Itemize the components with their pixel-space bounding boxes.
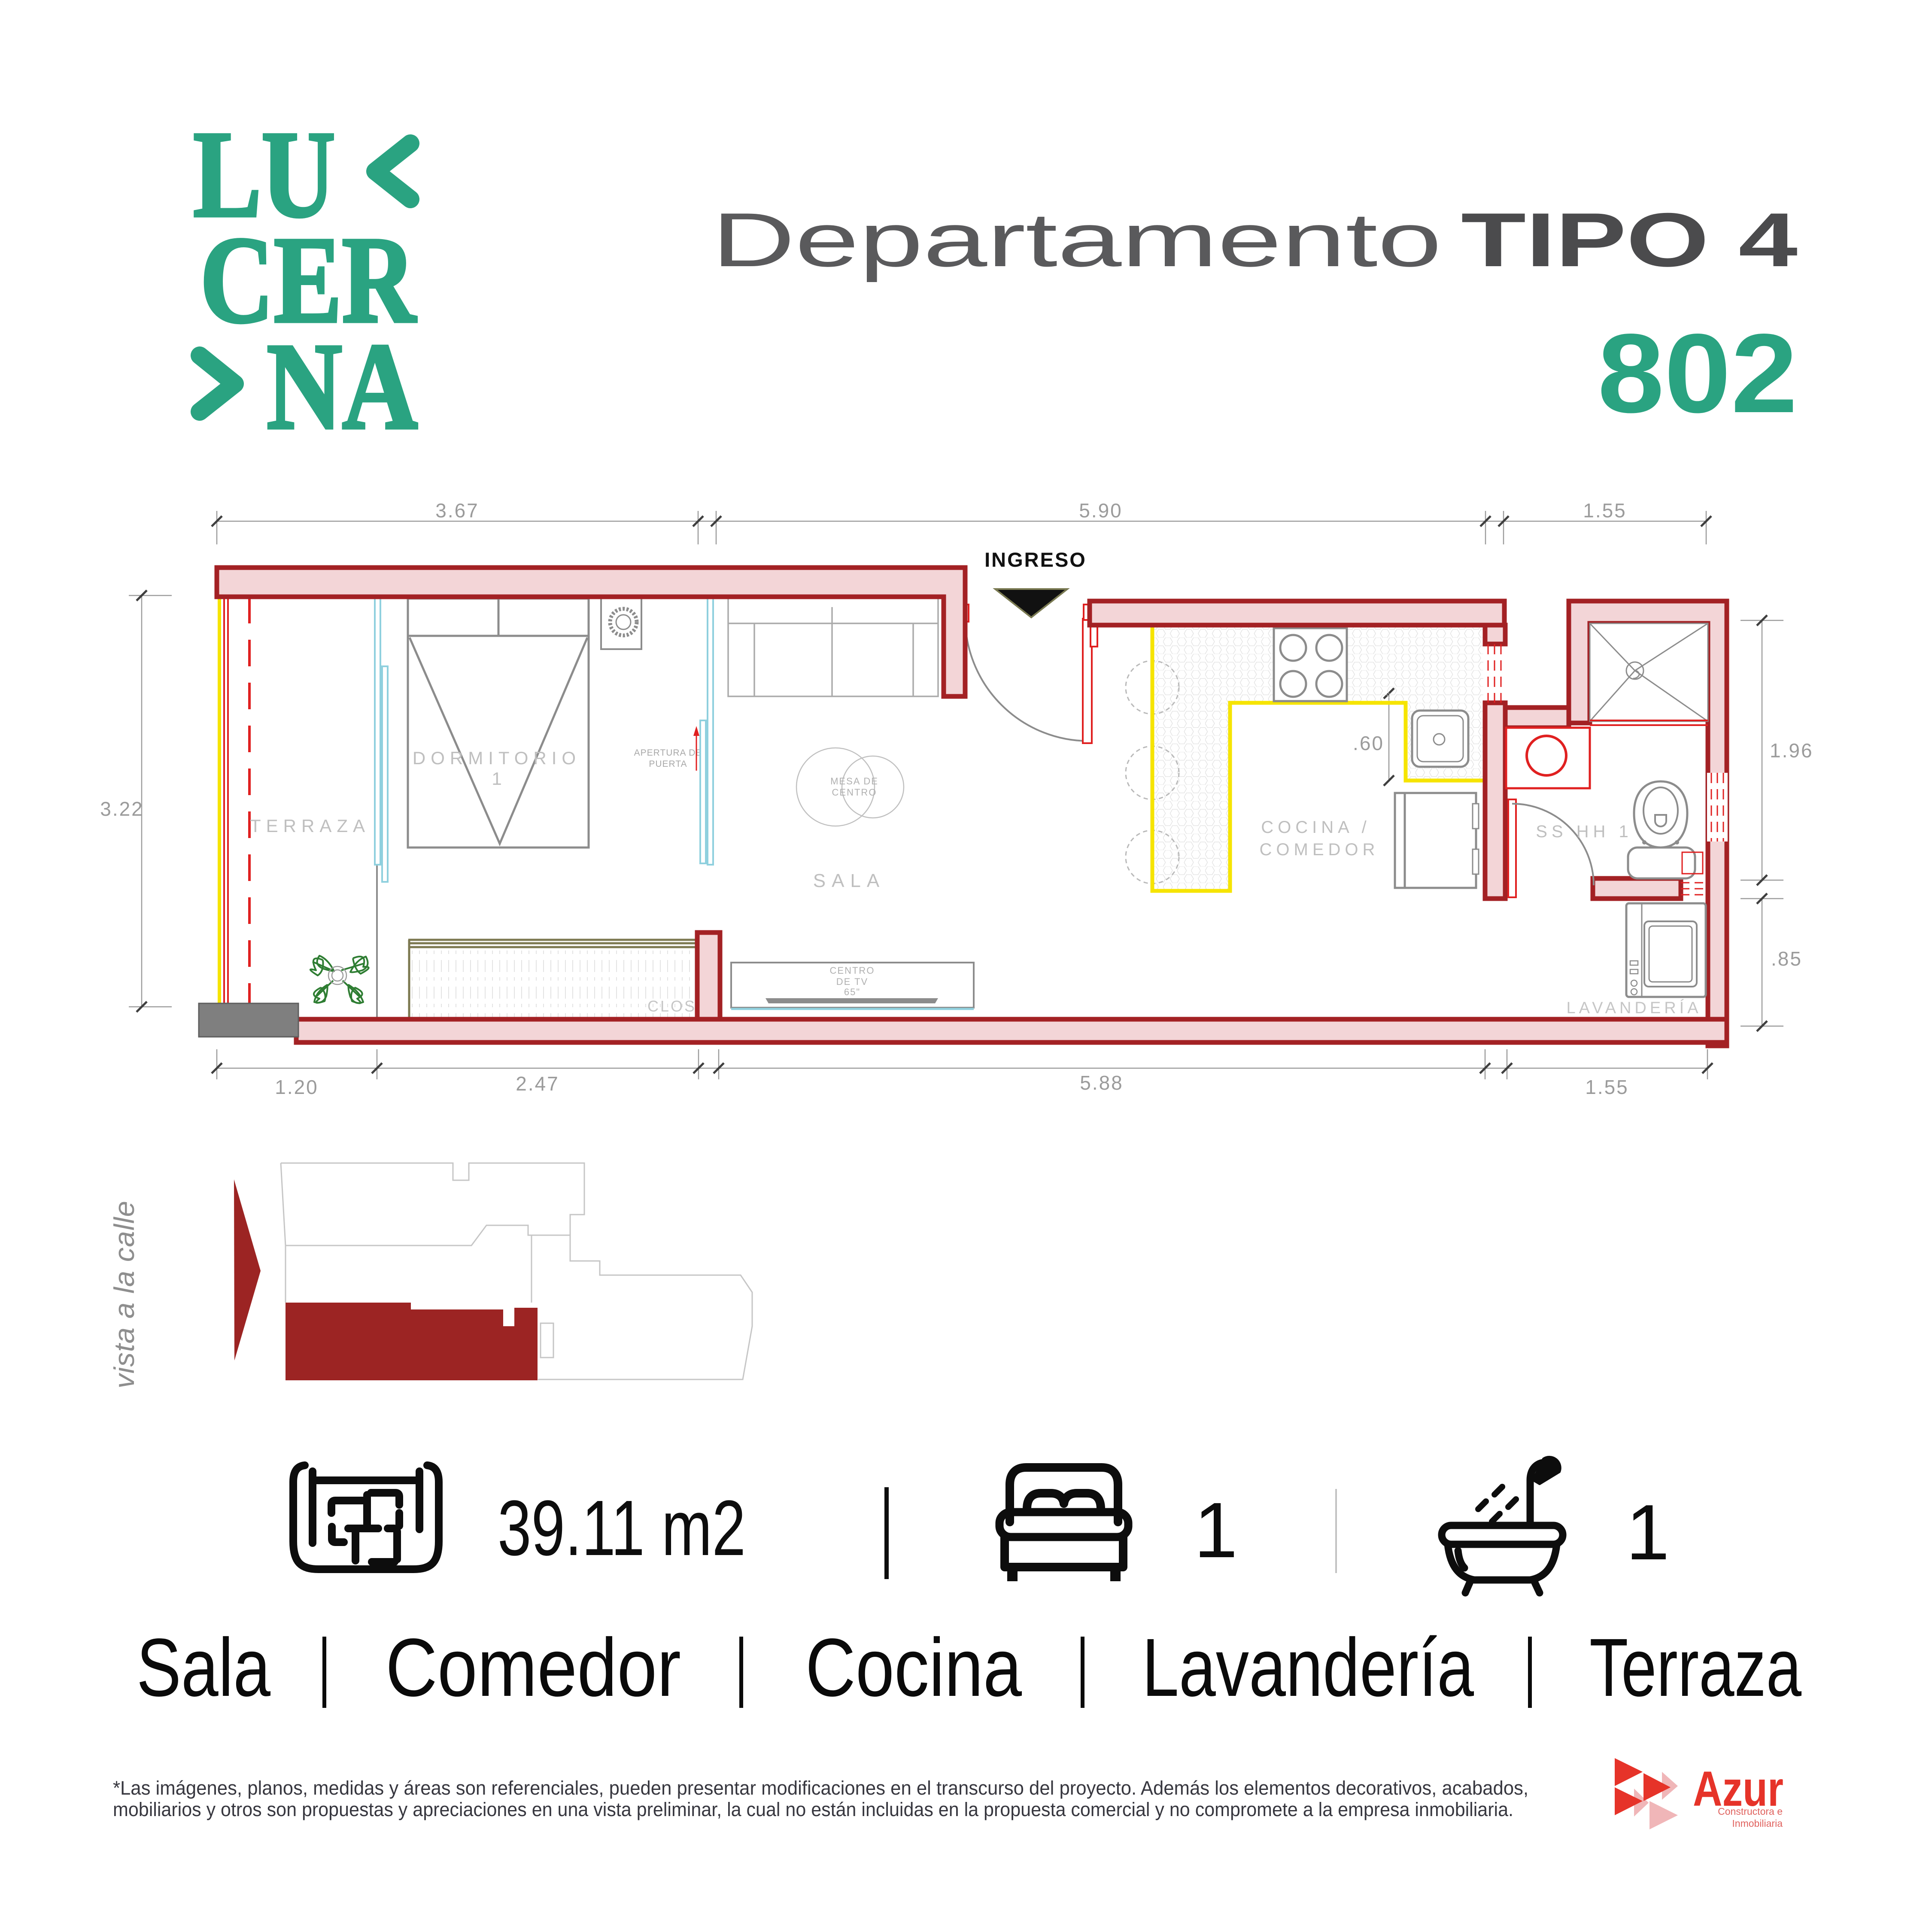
svg-text:mobiliarios y otros son propue: mobiliarios y otros son propuestas y apr… — [113, 1798, 1513, 1820]
svg-text:Lavandería: Lavandería — [1142, 1621, 1474, 1713]
svg-text:Sala: Sala — [137, 1621, 270, 1713]
svg-text:DORMITORIO: DORMITORIO — [413, 748, 581, 768]
svg-text:39.11 m2: 39.11 m2 — [498, 1484, 746, 1572]
svg-text:MESA DE: MESA DE — [830, 776, 878, 787]
svg-text:COMEDOR: COMEDOR — [1260, 840, 1379, 859]
svg-text:5.90: 5.90 — [1079, 499, 1123, 522]
svg-text:3.22: 3.22 — [100, 798, 144, 820]
svg-text:CENTRO: CENTRO — [830, 965, 875, 976]
svg-text:1.20: 1.20 — [275, 1076, 319, 1098]
svg-text:PUERTA: PUERTA — [649, 759, 687, 769]
svg-text:COCINA /: COCINA / — [1261, 818, 1371, 837]
svg-text:TIPO 4: TIPO 4 — [1461, 197, 1798, 283]
svg-text:.85: .85 — [1771, 948, 1802, 970]
svg-text:1: 1 — [492, 769, 501, 789]
svg-text:APERTURA DE: APERTURA DE — [634, 748, 702, 758]
svg-text:1: 1 — [1194, 1486, 1238, 1574]
svg-text:vista a la calle: vista a la calle — [108, 1200, 140, 1388]
svg-text:5.88: 5.88 — [1080, 1072, 1124, 1094]
svg-text:Inmobiliaria: Inmobiliaria — [1732, 1818, 1783, 1829]
svg-text:2.47: 2.47 — [516, 1072, 559, 1095]
svg-text:1.55: 1.55 — [1583, 499, 1627, 522]
svg-text:NA: NA — [267, 317, 418, 455]
svg-text:1.55: 1.55 — [1585, 1076, 1629, 1098]
svg-text:TERRAZA: TERRAZA — [250, 816, 370, 836]
svg-text:LAVANDERÍA: LAVANDERÍA — [1566, 999, 1701, 1017]
svg-text:INGRESO: INGRESO — [984, 548, 1087, 571]
svg-text:SALA: SALA — [813, 870, 886, 891]
svg-text:3.67: 3.67 — [435, 499, 479, 522]
svg-text:.60: .60 — [1353, 732, 1384, 754]
svg-text:Terraza: Terraza — [1589, 1621, 1801, 1713]
svg-text:Departamento: Departamento — [712, 197, 1442, 283]
svg-text:Comedor: Comedor — [386, 1621, 681, 1713]
svg-text:65": 65" — [844, 987, 860, 997]
svg-text:*Las imágenes, planos, medidas: *Las imágenes, planos, medidas y áreas s… — [113, 1777, 1528, 1799]
svg-text:CENTRO: CENTRO — [832, 787, 877, 798]
svg-text:802: 802 — [1598, 310, 1798, 436]
svg-text:1: 1 — [1626, 1488, 1670, 1576]
svg-text:Constructora e: Constructora e — [1718, 1806, 1783, 1817]
svg-text:DE TV: DE TV — [836, 976, 868, 987]
svg-text:Cocina: Cocina — [805, 1621, 1022, 1713]
svg-text:1.96: 1.96 — [1770, 739, 1814, 762]
svg-text:SS HH 1: SS HH 1 — [1536, 822, 1633, 841]
